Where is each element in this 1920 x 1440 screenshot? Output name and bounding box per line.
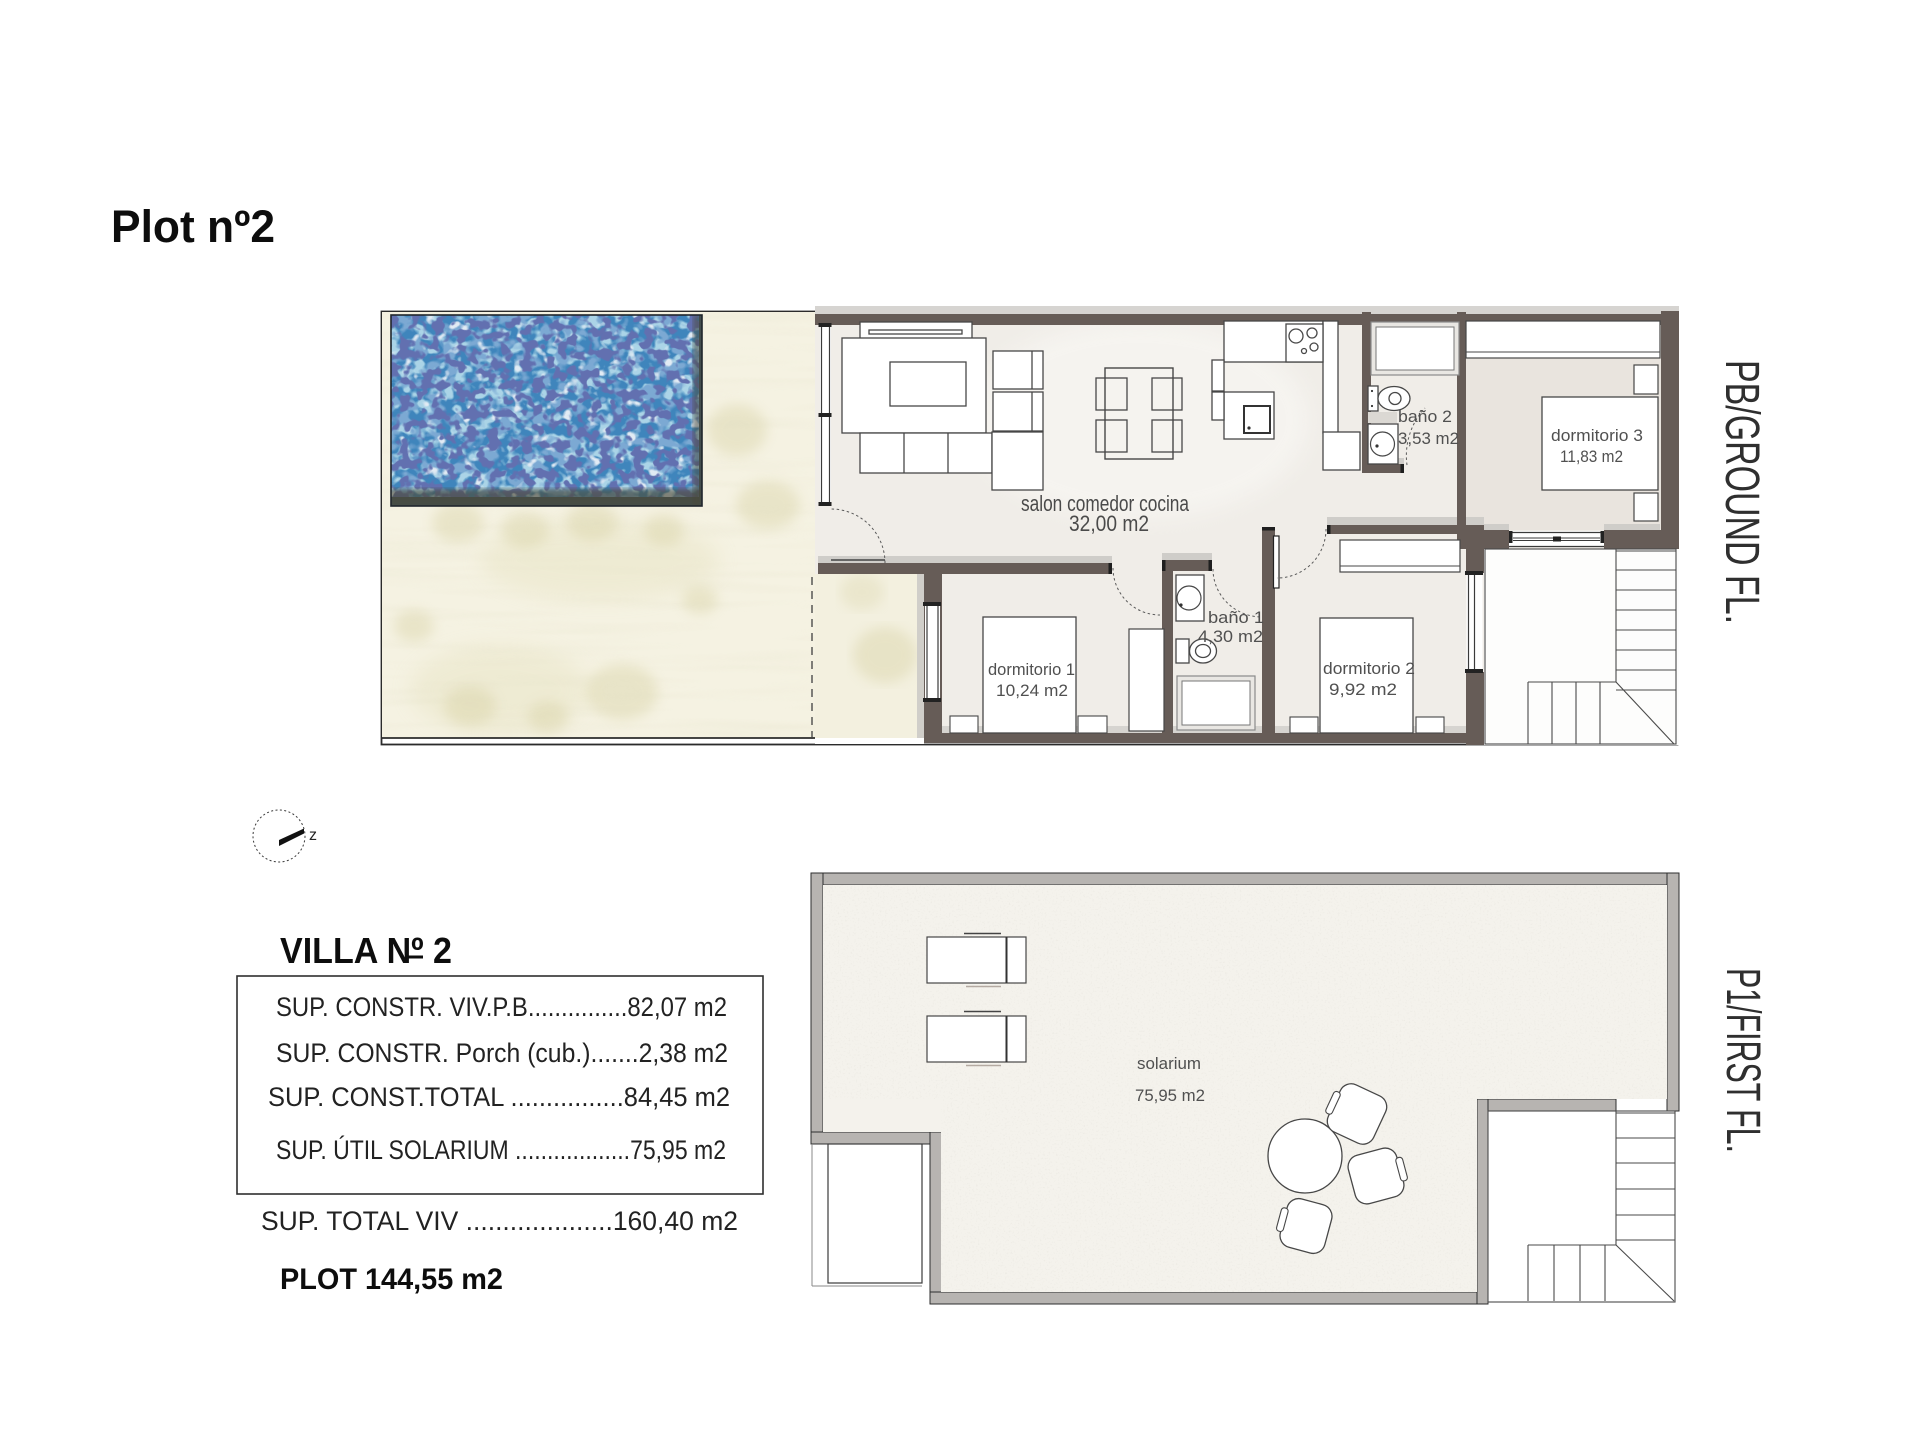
svg-text:SUP. TOTAL VIV ...............: SUP. TOTAL VIV ....................160,4… [261,1206,738,1236]
svg-text:SUP. ÚTIL SOLARIUM ...........: SUP. ÚTIL SOLARIUM ..................75,… [276,1134,726,1165]
svg-text:75,95 m2: 75,95 m2 [1135,1086,1205,1105]
svg-text:solarium: solarium [1137,1054,1201,1073]
svg-text:PLOT 144,55 m2: PLOT 144,55 m2 [280,1263,503,1296]
svg-text:P1/FIRST FL.: P1/FIRST FL. [1716,968,1769,1153]
svg-text:dormitorio 3: dormitorio 3 [1551,426,1643,445]
svg-text:32,00 m2: 32,00 m2 [1069,511,1149,536]
svg-text:baño 1: baño 1 [1208,608,1264,627]
svg-text:11,83 m2: 11,83 m2 [1560,447,1623,466]
svg-text:10,24 m2: 10,24 m2 [996,681,1068,700]
svg-text:dormitorio 1: dormitorio 1 [988,660,1075,679]
svg-text:dormitorio 2: dormitorio 2 [1323,659,1415,678]
svg-text:z: z [309,827,317,844]
svg-text:Plot nº2: Plot nº2 [111,201,275,252]
svg-text:9,92 m2: 9,92 m2 [1329,680,1397,699]
svg-text:SUP. CONSTR. Porch (cub.).....: SUP. CONSTR. Porch (cub.).......2,38 m2 [276,1038,728,1068]
svg-text:baño 2: baño 2 [1398,407,1452,426]
svg-text:4,30 m2: 4,30 m2 [1198,627,1263,646]
svg-text:VILLA Nº 2: VILLA Nº 2 [280,930,452,971]
svg-text:3,53 m2: 3,53 m2 [1398,429,1459,448]
svg-text:SUP. CONSTR. VIV.P.B..........: SUP. CONSTR. VIV.P.B...............82,07… [276,992,727,1022]
svg-text:PB/GROUND FL.: PB/GROUND FL. [1715,360,1768,624]
svg-text:SUP. CONST.TOTAL .............: SUP. CONST.TOTAL ................84,45 m… [268,1082,730,1112]
